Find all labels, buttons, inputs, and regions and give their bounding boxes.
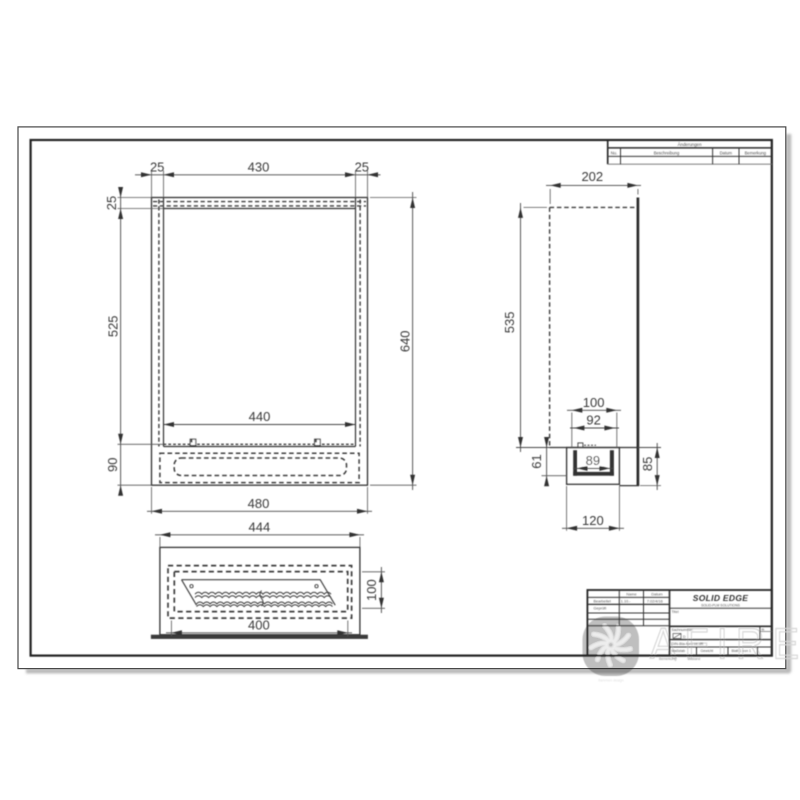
svg-text:Geprüft: Geprüft [594,606,608,610]
svg-text:430: 430 [248,159,270,174]
svg-text:100: 100 [583,395,605,410]
svg-text:Sachnummer:: Sachnummer: [672,628,694,632]
svg-text:535: 535 [502,312,517,334]
svg-text:Titel: Titel [672,610,679,614]
svg-text:Bemerkung: Bemerkung [659,657,676,661]
svg-text:flammen design: flammen design [598,679,623,683]
svg-text:480: 480 [248,496,270,511]
svg-text:92: 92 [586,413,600,428]
svg-text:SOLID-PLM SOLUTIONS: SOLID-PLM SOLUTIONS [701,604,741,608]
svg-text:25: 25 [104,196,119,210]
svg-text:400: 400 [248,617,270,632]
svg-text:90: 90 [105,458,120,472]
svg-text:Nu.: Nu. [611,150,618,155]
svg-text:100: 100 [364,579,379,601]
svg-text:444: 444 [249,519,271,534]
svg-text:120: 120 [582,513,604,528]
svg-text:7.02/4/16: 7.02/4/16 [647,600,663,604]
svg-text:Datum: Datum [720,150,733,155]
svg-text:Maßstab: Maßstab [672,649,686,653]
svg-text:Beschreibung: Beschreibung [654,150,680,155]
svg-text:Zustand: Zustand [688,657,700,661]
svg-text:Gewicht: Gewicht [701,649,714,653]
svg-text:Blatt 1 von 1: Blatt 1 von 1 [732,649,752,653]
svg-text:1.10.-: 1.10.- [621,600,631,604]
svg-text:85: 85 [640,457,655,471]
svg-text:25: 25 [150,159,164,174]
svg-text:202: 202 [581,169,603,184]
svg-text:DIN-Bla-foru-ve.dft: DIN-Bla-foru-ve.dft [672,642,705,646]
svg-text:Bearbeitet: Bearbeitet [594,600,612,604]
svg-text:89: 89 [586,453,600,468]
svg-text:Bemerkung: Bemerkung [745,150,767,155]
svg-text:440: 440 [249,409,271,424]
svg-text:Änderungen: Änderungen [678,142,702,147]
svg-text:Bl.: Bl. [762,627,766,631]
svg-text:25: 25 [355,159,369,174]
svg-text:SOLID EDGE: SOLID EDGE [693,593,748,603]
svg-text:Datum: Datum [651,592,662,596]
svg-text:525: 525 [106,315,121,337]
svg-text:640: 640 [397,330,412,352]
svg-text:Name: Name [626,592,636,596]
svg-text:61: 61 [529,454,544,468]
